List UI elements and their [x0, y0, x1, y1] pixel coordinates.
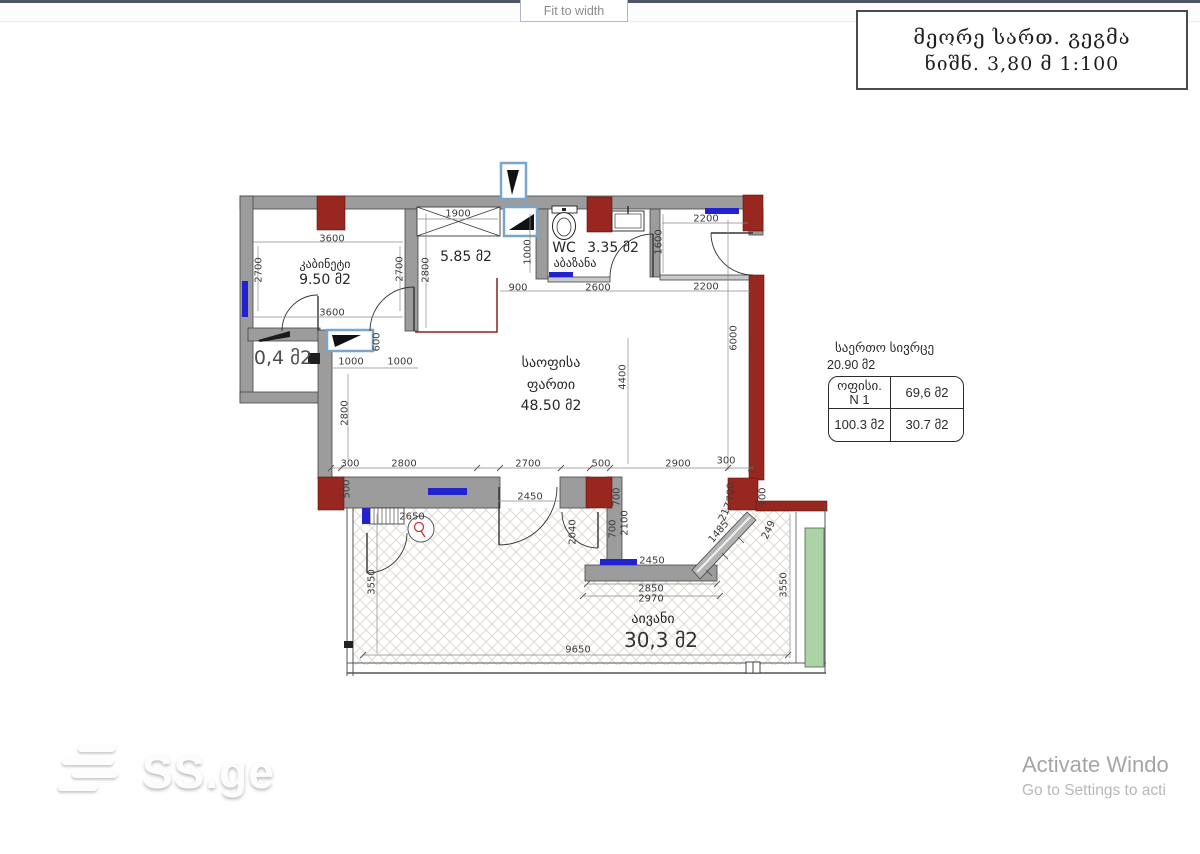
activation-line1: Activate Windo — [1022, 752, 1169, 778]
dim-label: 2800 — [421, 257, 432, 282]
dim-label: 2700 — [515, 459, 540, 470]
dim-label: 2100 — [620, 510, 631, 535]
area-table-balcony-area: 30.7 მ2 — [891, 409, 963, 441]
plan-title-box: მეორე სართ. გეგმა ნიშნ. 3,80 მ 1:100 — [856, 10, 1188, 90]
rail-hook — [344, 641, 353, 648]
office-number: N 1 — [849, 393, 869, 407]
area-table-office-cell: ოფისი. N 1 — [829, 377, 891, 409]
ssge-watermark: SS.ge — [58, 744, 275, 800]
dim-label: 500 — [342, 479, 353, 498]
area-table-title: საერთო სივრცე — [835, 340, 978, 356]
dim-label: 700 — [608, 519, 619, 538]
sink-symbol — [612, 206, 644, 231]
toilet-symbol — [552, 206, 577, 240]
dim-label: 700 — [612, 487, 623, 506]
dim-label: 2040 — [568, 519, 579, 544]
dim-label: 700 — [758, 487, 769, 506]
dim-label: 3550 — [779, 572, 790, 597]
room-label-wc: WC — [552, 240, 576, 256]
dim-label: 1000 — [523, 239, 534, 264]
dim-label: 600 — [372, 332, 383, 351]
dim-label: 2970 — [638, 594, 663, 605]
dim-label: 3600 — [319, 308, 344, 319]
door-cabinet — [282, 295, 318, 331]
area-table-total: 20.90 მ2 — [827, 357, 978, 372]
dim-label: 1000 — [387, 357, 412, 368]
rail-hatch-symbol — [746, 662, 760, 673]
office-label: ოფისი. — [837, 379, 882, 393]
dim-label: 1600 — [654, 229, 665, 254]
dim-label: 1900 — [445, 209, 470, 220]
dim-label: 900 — [508, 283, 527, 294]
ssge-logo-text: SS.ge — [142, 745, 275, 799]
area-table-total-area: 100.3 მ2 — [829, 409, 891, 441]
room-area-wc: 3.35 მ2 — [587, 240, 639, 256]
room-label-balcony: აივანი — [631, 611, 674, 627]
dim-label: 9650 — [565, 645, 590, 656]
page: Fit to width მეორე სართ. გეგმა ნიშნ. 3,8… — [0, 0, 1200, 854]
room-area-balcony: 30,3 მ2 — [624, 628, 698, 652]
windows-activation-notice: Activate Windo Go to Settings to acti — [1022, 752, 1169, 800]
room-area-office: 48.50 მ2 — [521, 398, 582, 414]
dim-label: 2700 — [395, 256, 406, 281]
room-label-office-line2: ფართი — [527, 376, 575, 393]
unit-boundary-red-line — [415, 278, 497, 332]
green-planter-strip — [805, 528, 824, 667]
dim-label: 300 — [340, 459, 359, 470]
ssge-logo-icon — [58, 744, 120, 800]
floor-plan: 3600 2700 2700 3600 1900 2800 1000 900 2… — [228, 150, 850, 695]
dim-label: 3600 — [319, 234, 344, 245]
dim-label: 2600 — [585, 283, 610, 294]
dim-label: 2450 — [517, 492, 542, 503]
plan-title-line1: მეორე სართ. გეგმა — [913, 25, 1130, 49]
dim-label: 2450 — [639, 556, 664, 567]
room-label-bathroom: აბაზანა — [554, 256, 597, 270]
dim-label: 700 — [726, 482, 737, 501]
room-label-office-line1: საოფისა — [522, 355, 581, 371]
dim-label: 300 — [716, 456, 735, 467]
activation-line2: Go to Settings to acti — [1022, 782, 1169, 800]
dim-label: 2800 — [340, 400, 351, 425]
dim-label: 500 — [591, 459, 610, 470]
fit-to-width-button[interactable]: Fit to width — [520, 0, 628, 22]
room-area-585: 5.85 მ2 — [440, 249, 492, 265]
plan-title-line2: ნიშნ. 3,80 მ 1:100 — [925, 53, 1120, 75]
room-area-niche: 0,4 მ2 — [254, 347, 312, 369]
dim-label: 3550 — [367, 569, 378, 594]
door-top-right-room — [711, 233, 753, 275]
dim-label: 2800 — [391, 459, 416, 470]
dim-label: 4400 — [618, 364, 629, 389]
room-area-cabinet: 9.50 მ2 — [299, 272, 351, 288]
dim-label: 2900 — [665, 459, 690, 470]
area-table-office-area: 69,6 მ2 — [891, 377, 963, 409]
area-summary-panel: საერთო სივრცე 20.90 მ2 ოფისი. N 1 69,6 მ… — [818, 340, 978, 442]
vent-symbols — [327, 163, 537, 351]
dim-label: 2200 — [693, 214, 718, 225]
room-label-cabinet: კაბინეტი — [299, 257, 350, 271]
dim-label: 2700 — [254, 257, 265, 282]
dim-label: 6000 — [729, 325, 740, 350]
dim-label: 2200 — [693, 282, 718, 293]
area-table: ოფისი. N 1 69,6 მ2 100.3 მ2 30.7 მ2 — [828, 376, 964, 442]
dim-label: 1000 — [338, 357, 363, 368]
dim-label: 2650 — [399, 512, 424, 523]
